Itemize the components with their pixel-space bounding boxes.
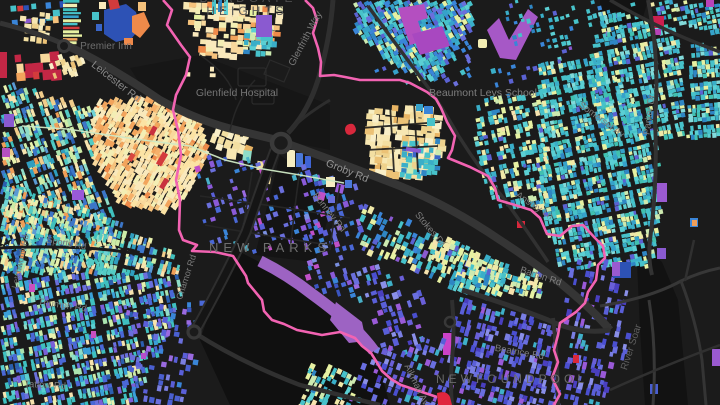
svg-text:Beaumont Leys School: Beaumont Leys School bbox=[429, 87, 537, 99]
svg-text:Tatlow Rd: Tatlow Rd bbox=[24, 379, 66, 392]
svg-text:Premier Inn: Premier Inn bbox=[80, 41, 132, 52]
svg-text:NEWFOUNDPOOL: NEWFOUNDPOOL bbox=[436, 372, 588, 386]
svg-text:NEW PARKS: NEW PARKS bbox=[209, 240, 331, 255]
svg-text:Glenfield Hospital: Glenfield Hospital bbox=[196, 87, 278, 99]
svg-text:HEIGHTS: HEIGHTS bbox=[206, 4, 287, 18]
